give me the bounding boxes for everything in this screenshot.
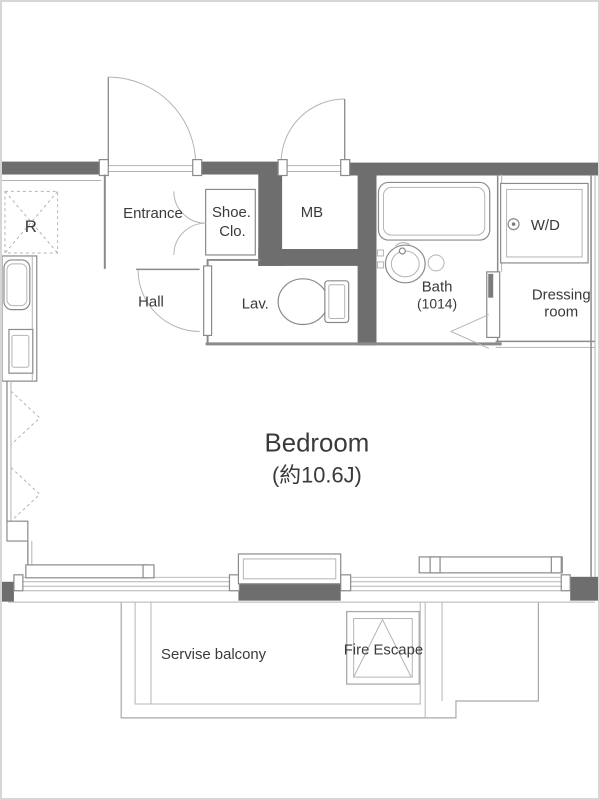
bathroom-fixtures — [377, 182, 499, 348]
label-bath-size: (1014) — [417, 296, 457, 312]
toilet-icon — [278, 279, 349, 325]
wall-below-mb — [258, 249, 359, 266]
label-fire-escape: Fire Escape — [344, 642, 423, 658]
bedroom-window-left — [14, 565, 239, 591]
bathtub — [378, 182, 489, 240]
entrance-door — [108, 77, 195, 164]
label-shoe-closet-line1: Shoe. — [212, 205, 251, 221]
shoe-closet-box — [206, 189, 256, 255]
floor-plan: R Entrance Shoe. Clo. MB Hall Lav. Bath … — [2, 2, 598, 798]
label-refrigerator: R — [25, 217, 37, 236]
label-bath: Bath — [422, 280, 453, 296]
bath-faucet-icon — [399, 248, 405, 254]
window-sash — [419, 557, 562, 573]
bedroom-window-center-pillar — [238, 554, 340, 584]
wall-top-middle — [198, 162, 283, 175]
left-wall — [7, 381, 40, 577]
label-entrance: Entrance — [123, 206, 183, 222]
balcony-outline — [8, 602, 595, 718]
wall-lav-bath — [358, 174, 377, 346]
label-dressing-room-line1: Dressing — [532, 288, 591, 304]
label-shoe-closet-line2: Clo. — [219, 224, 245, 240]
wall-top-right — [345, 163, 598, 176]
label-washer-dryer: W/D — [531, 218, 560, 234]
label-hall: Hall — [138, 295, 164, 311]
floor-plan-image: R Entrance Shoe. Clo. MB Hall Lav. Bath … — [0, 0, 600, 800]
lav-door — [204, 266, 212, 336]
meter-box-door — [281, 99, 345, 163]
wall-bottom-right — [570, 577, 598, 601]
wall-bottom-center — [238, 584, 340, 601]
wall-bottom-left — [2, 582, 14, 602]
kitchen-counter — [2, 256, 37, 381]
toilet-bowl — [278, 279, 328, 325]
shoe-closet — [174, 189, 255, 255]
label-lavatory: Lav. — [242, 297, 269, 313]
label-meter-box: MB — [301, 205, 323, 221]
bedroom-window-right — [341, 557, 570, 591]
wall-top-left — [2, 162, 104, 175]
label-bedroom: Bedroom — [265, 430, 370, 458]
label-bedroom-size: (約10.6J) — [272, 462, 362, 487]
window-sash — [26, 565, 147, 578]
label-service-balcony: Servise balcony — [161, 647, 267, 663]
label-dressing-room-line2: room — [544, 305, 578, 321]
bath-drain-icon — [428, 255, 444, 271]
